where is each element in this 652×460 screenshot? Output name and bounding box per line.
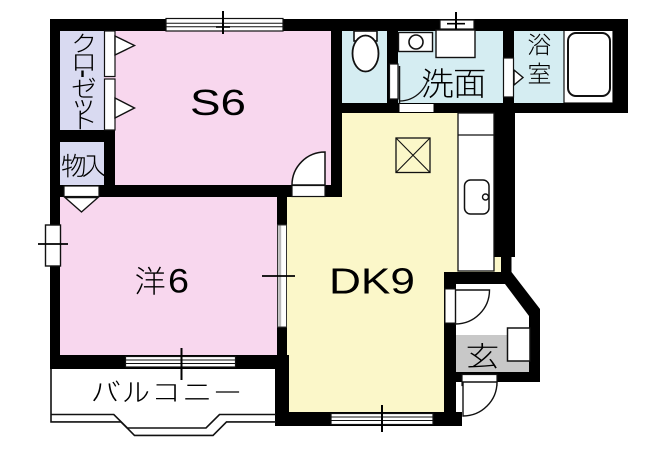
- svg-text:S6: S6: [190, 82, 246, 123]
- svg-text:6: 6: [168, 263, 189, 301]
- svg-text:DK9: DK9: [329, 261, 415, 302]
